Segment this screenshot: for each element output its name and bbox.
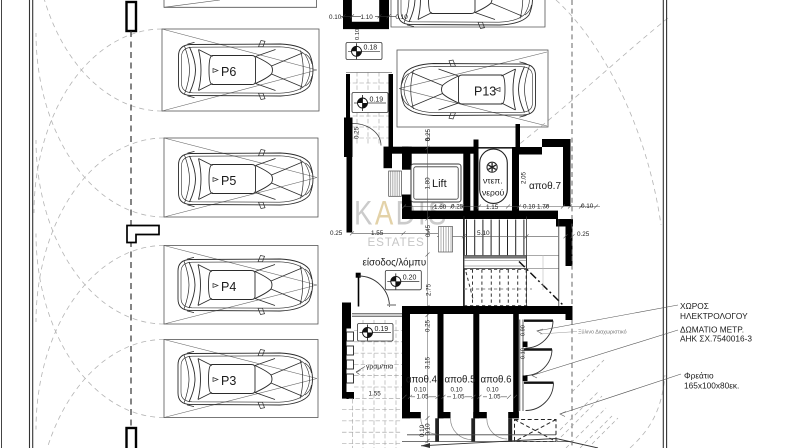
svg-text:Ξύλινο Διαχωριστικό: Ξύλινο Διαχωριστικό — [578, 329, 627, 336]
svg-text:ΧΩΡΟΣ: ΧΩΡΟΣ — [680, 301, 709, 311]
svg-text:0.25: 0.25 — [425, 128, 432, 141]
svg-text:P5: P5 — [221, 174, 236, 188]
svg-text:0.19: 0.19 — [375, 326, 389, 333]
svg-text:0.25: 0.25 — [577, 231, 590, 238]
svg-text:1.55: 1.55 — [369, 391, 382, 398]
svg-text:0.10: 0.10 — [451, 387, 464, 394]
svg-text:0.10: 0.10 — [419, 424, 426, 437]
svg-text:1.05: 1.05 — [453, 394, 466, 401]
svg-text:2.75: 2.75 — [426, 283, 433, 296]
svg-text:165x100x80εκ.: 165x100x80εκ. — [684, 381, 739, 391]
svg-text:0.25: 0.25 — [451, 204, 464, 211]
svg-text:ΗΛΕΚΤΡΟΛΟΓΟΥ: ΗΛΕΚΤΡΟΛΟΓΟΥ — [680, 311, 748, 321]
svg-text:0.90: 0.90 — [521, 325, 527, 336]
svg-text:P6: P6 — [221, 65, 236, 79]
svg-text:αποθ.4: αποθ.4 — [406, 375, 438, 386]
svg-text:νερού: νερού — [482, 188, 505, 198]
svg-text:0.10: 0.10 — [396, 14, 409, 21]
svg-text:1.80: 1.80 — [425, 177, 432, 190]
svg-text:ΑΗΚ ΣΧ.7540016-3: ΑΗΚ ΣΧ.7540016-3 — [680, 334, 752, 344]
svg-text:0.25: 0.25 — [330, 230, 343, 237]
svg-text:1.60: 1.60 — [434, 204, 447, 211]
svg-text:αποθ.7: αποθ.7 — [529, 181, 561, 192]
svg-text:ντεπ.: ντεπ. — [483, 176, 503, 186]
svg-text:ESTATES: ESTATES — [368, 236, 425, 249]
svg-text:P3: P3 — [221, 374, 236, 388]
svg-text:2.05: 2.05 — [521, 171, 528, 184]
svg-text:Φρεάτιο: Φρεάτιο — [684, 370, 714, 380]
svg-text:είσοδος/λόμπυ: είσοδος/λόμπυ — [363, 258, 427, 269]
svg-text:0.10: 0.10 — [581, 203, 594, 210]
svg-text:1.55: 1.55 — [371, 230, 384, 237]
svg-text:1.05: 1.05 — [417, 394, 430, 401]
svg-text:0.25: 0.25 — [354, 126, 361, 139]
svg-text:0.20: 0.20 — [403, 275, 417, 282]
svg-text:0.10: 0.10 — [355, 29, 361, 40]
svg-text:αποθ.5: αποθ.5 — [445, 375, 476, 386]
svg-text:P13: P13 — [474, 85, 496, 99]
svg-text:5.10: 5.10 — [477, 230, 490, 237]
svg-text:0.10 1.70: 0.10 1.70 — [523, 204, 550, 211]
svg-text:0.10: 0.10 — [521, 348, 527, 359]
svg-text:1.05: 1.05 — [489, 394, 502, 401]
svg-text:0.10: 0.10 — [487, 387, 500, 394]
svg-text:P4: P4 — [221, 280, 236, 294]
svg-text:0.25: 0.25 — [425, 319, 432, 332]
svg-text:3.15: 3.15 — [425, 356, 432, 369]
svg-text:0.19: 0.19 — [370, 96, 384, 103]
svg-text:Lift: Lift — [432, 178, 447, 190]
svg-text:0.18: 0.18 — [364, 45, 378, 52]
svg-text:0.10: 0.10 — [414, 387, 427, 394]
svg-text:1.15: 1.15 — [486, 204, 499, 211]
svg-text:1.10: 1.10 — [361, 14, 374, 21]
svg-text:αποθ.6: αποθ.6 — [481, 375, 512, 386]
svg-text:0.10: 0.10 — [329, 14, 342, 21]
